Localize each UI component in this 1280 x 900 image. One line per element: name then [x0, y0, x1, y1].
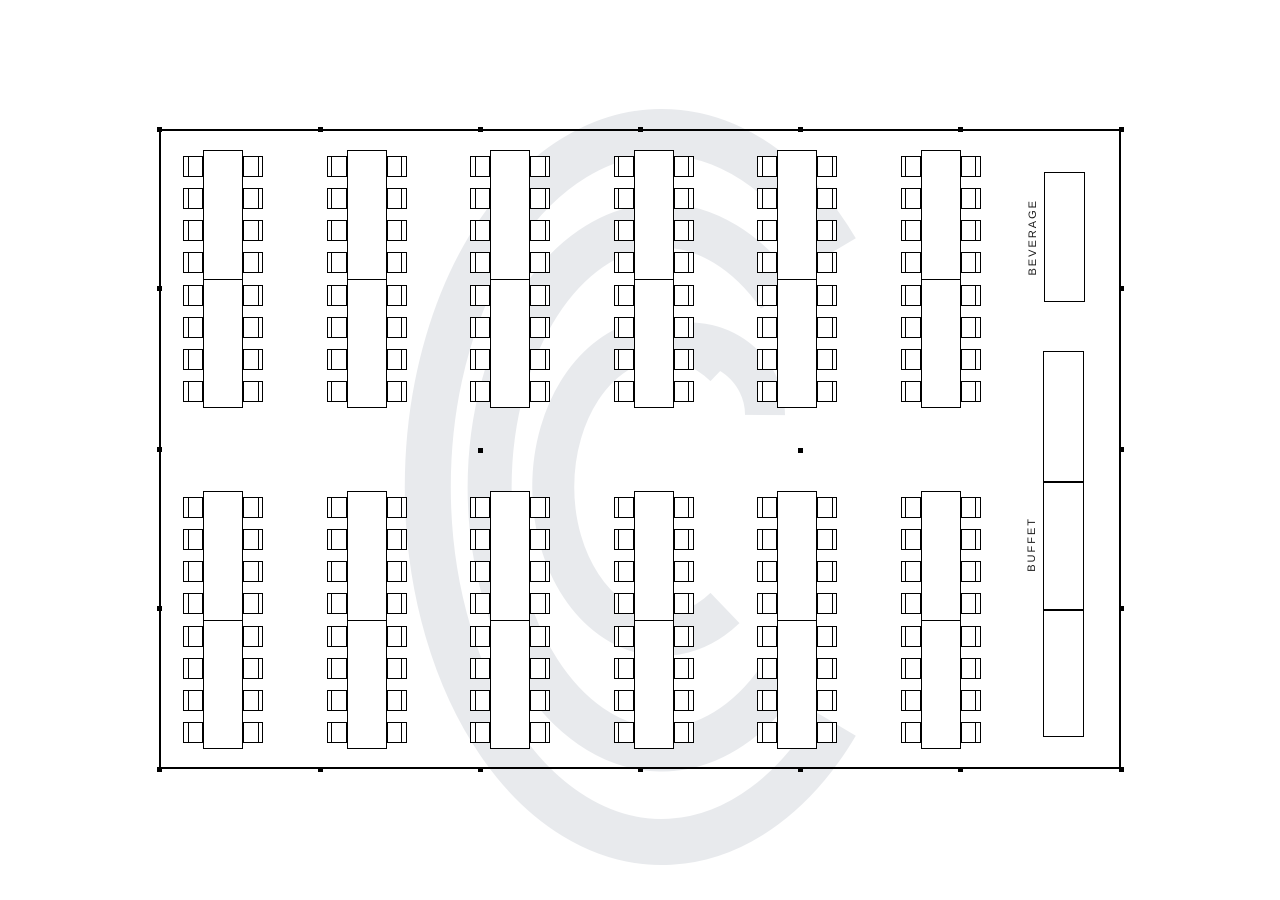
banquet-table — [203, 491, 243, 749]
chair-back — [545, 690, 546, 711]
chair-back — [258, 561, 259, 582]
chair-back — [258, 349, 259, 370]
chair — [674, 593, 694, 614]
chair-back — [401, 285, 402, 306]
chair-back — [545, 497, 546, 518]
chair-back — [762, 285, 763, 306]
chair-back — [832, 156, 833, 177]
pole-marker — [318, 767, 323, 772]
chair-back — [331, 285, 332, 306]
pole-marker — [638, 767, 643, 772]
chair — [901, 188, 921, 209]
chair — [674, 690, 694, 711]
chair — [674, 156, 694, 177]
pole-marker — [638, 127, 643, 132]
chair — [530, 561, 550, 582]
chair-back — [688, 188, 689, 209]
chair-back — [545, 381, 546, 402]
chair-back — [475, 561, 476, 582]
chair — [614, 529, 634, 550]
chair-back — [545, 252, 546, 273]
chair-back — [258, 285, 259, 306]
chair — [243, 156, 263, 177]
chair — [817, 593, 837, 614]
chair-back — [905, 220, 906, 241]
chair-back — [762, 626, 763, 647]
chair — [757, 690, 777, 711]
chair — [961, 220, 981, 241]
chair-back — [832, 349, 833, 370]
table-joint-divider — [778, 620, 816, 621]
pole-marker — [157, 606, 162, 611]
chair-back — [975, 156, 976, 177]
pole-marker — [798, 127, 803, 132]
chair — [183, 220, 203, 241]
chair — [243, 626, 263, 647]
chair-back — [832, 285, 833, 306]
chair-back — [475, 497, 476, 518]
chair — [243, 529, 263, 550]
chair — [243, 252, 263, 273]
banquet-table — [777, 150, 817, 408]
chair-back — [258, 497, 259, 518]
chair-back — [688, 381, 689, 402]
chair — [530, 593, 550, 614]
chair — [470, 529, 490, 550]
chair — [327, 188, 347, 209]
chair — [757, 252, 777, 273]
chair-back — [905, 349, 906, 370]
chair — [757, 220, 777, 241]
chair — [901, 349, 921, 370]
chair-back — [688, 156, 689, 177]
chair — [757, 285, 777, 306]
chair-back — [905, 252, 906, 273]
chair — [470, 349, 490, 370]
chair-back — [832, 690, 833, 711]
chair-back — [832, 658, 833, 679]
chair — [530, 658, 550, 679]
chair — [387, 593, 407, 614]
chair — [614, 690, 634, 711]
chair-back — [401, 349, 402, 370]
chair — [327, 156, 347, 177]
chair — [674, 220, 694, 241]
chair — [961, 658, 981, 679]
pole-marker — [157, 127, 162, 132]
chair — [757, 156, 777, 177]
chair-back — [905, 561, 906, 582]
chair — [530, 156, 550, 177]
chair-back — [331, 626, 332, 647]
chair-back — [188, 381, 189, 402]
chair-back — [188, 252, 189, 273]
chair — [327, 252, 347, 273]
chair — [470, 722, 490, 743]
chair-back — [401, 156, 402, 177]
chair-back — [475, 658, 476, 679]
chair — [327, 593, 347, 614]
chair-back — [975, 349, 976, 370]
pole-marker — [798, 767, 803, 772]
chair — [817, 220, 837, 241]
chair — [387, 156, 407, 177]
chair-back — [188, 188, 189, 209]
banquet-table — [634, 150, 674, 408]
chair-back — [331, 529, 332, 550]
chair-back — [832, 252, 833, 273]
chair-back — [475, 529, 476, 550]
chair-back — [475, 381, 476, 402]
chair — [243, 285, 263, 306]
chair-back — [258, 593, 259, 614]
chair-back — [975, 593, 976, 614]
chair-back — [905, 690, 906, 711]
chair — [387, 349, 407, 370]
chair-back — [975, 317, 976, 338]
beverage-table: BEVERAGE — [1044, 172, 1085, 302]
chair — [243, 317, 263, 338]
chair — [614, 593, 634, 614]
chair-back — [188, 529, 189, 550]
chair — [614, 156, 634, 177]
chair-back — [975, 188, 976, 209]
table-joint-divider — [204, 620, 242, 621]
chair — [327, 381, 347, 402]
chair-back — [475, 156, 476, 177]
chair-back — [618, 593, 619, 614]
pole-marker — [1119, 606, 1124, 611]
chair-back — [331, 593, 332, 614]
chair-back — [688, 658, 689, 679]
chair — [961, 349, 981, 370]
buffet-table: BUFFET — [1043, 351, 1084, 737]
chair-back — [545, 349, 546, 370]
pole-marker — [1119, 286, 1124, 291]
chair — [961, 722, 981, 743]
chair-back — [975, 529, 976, 550]
chair-back — [618, 529, 619, 550]
chair — [470, 317, 490, 338]
chair-back — [258, 381, 259, 402]
chair — [327, 658, 347, 679]
chair — [757, 593, 777, 614]
chair-back — [188, 285, 189, 306]
chair — [387, 497, 407, 518]
table-joint-divider — [635, 620, 673, 621]
chair — [243, 349, 263, 370]
chair — [817, 658, 837, 679]
buffet-segment-divider — [1044, 609, 1083, 611]
chair — [243, 497, 263, 518]
chair-back — [545, 188, 546, 209]
chair-back — [905, 317, 906, 338]
chair — [530, 220, 550, 241]
chair-back — [258, 722, 259, 743]
chair — [470, 561, 490, 582]
chair-back — [975, 626, 976, 647]
chair-back — [905, 593, 906, 614]
chair — [327, 690, 347, 711]
pole-marker — [478, 127, 483, 132]
chair — [183, 349, 203, 370]
chair — [183, 658, 203, 679]
chair — [183, 722, 203, 743]
chair-back — [258, 220, 259, 241]
chair — [387, 188, 407, 209]
chair — [674, 561, 694, 582]
chair-back — [832, 381, 833, 402]
chair-back — [258, 690, 259, 711]
chair — [757, 529, 777, 550]
chair — [387, 626, 407, 647]
chair — [817, 188, 837, 209]
chair-back — [618, 626, 619, 647]
chair — [243, 188, 263, 209]
pole-marker — [157, 286, 162, 291]
table-joint-divider — [922, 279, 960, 280]
chair-back — [688, 626, 689, 647]
chair-back — [258, 156, 259, 177]
chair-back — [832, 497, 833, 518]
chair — [470, 156, 490, 177]
chair-back — [258, 626, 259, 647]
chair — [901, 722, 921, 743]
chair — [327, 285, 347, 306]
chair — [530, 381, 550, 402]
chair — [817, 690, 837, 711]
chair — [817, 626, 837, 647]
chair — [961, 529, 981, 550]
chair-back — [688, 690, 689, 711]
chair-back — [331, 658, 332, 679]
chair-back — [762, 156, 763, 177]
chair — [530, 529, 550, 550]
chair-back — [188, 220, 189, 241]
pole-marker — [958, 767, 963, 772]
chair-back — [905, 626, 906, 647]
chair — [674, 317, 694, 338]
chair-back — [688, 349, 689, 370]
chair — [674, 722, 694, 743]
chair — [674, 658, 694, 679]
chair — [530, 285, 550, 306]
chair — [674, 252, 694, 273]
chair — [674, 188, 694, 209]
chair — [243, 561, 263, 582]
chair-back — [762, 188, 763, 209]
chair — [614, 252, 634, 273]
chair-back — [688, 722, 689, 743]
chair — [961, 626, 981, 647]
table-joint-divider — [348, 279, 386, 280]
chair — [674, 626, 694, 647]
chair — [183, 529, 203, 550]
chair-back — [475, 626, 476, 647]
table-joint-divider — [204, 279, 242, 280]
banquet-table — [634, 491, 674, 749]
chair-back — [331, 317, 332, 338]
chair-back — [762, 349, 763, 370]
chair-back — [331, 561, 332, 582]
chair-back — [401, 658, 402, 679]
chair — [183, 188, 203, 209]
chair-back — [401, 252, 402, 273]
chair — [470, 381, 490, 402]
chair-back — [618, 285, 619, 306]
chair-back — [832, 529, 833, 550]
chair-back — [975, 285, 976, 306]
chair-back — [331, 381, 332, 402]
banquet-table — [490, 491, 530, 749]
chair — [243, 690, 263, 711]
chair — [243, 593, 263, 614]
chair-back — [331, 690, 332, 711]
chair — [243, 220, 263, 241]
chair-back — [331, 497, 332, 518]
chair-back — [331, 349, 332, 370]
chair — [183, 317, 203, 338]
chair-back — [401, 317, 402, 338]
banquet-table — [203, 150, 243, 408]
chair-back — [688, 593, 689, 614]
chair-back — [688, 220, 689, 241]
chair-back — [618, 156, 619, 177]
table-joint-divider — [491, 620, 529, 621]
chair — [387, 529, 407, 550]
chair-back — [975, 658, 976, 679]
chair-back — [401, 497, 402, 518]
chair-back — [545, 722, 546, 743]
chair — [614, 381, 634, 402]
chair-back — [331, 220, 332, 241]
chair-back — [688, 529, 689, 550]
chair-back — [832, 188, 833, 209]
chair-back — [832, 220, 833, 241]
chair-back — [618, 220, 619, 241]
chair-back — [545, 529, 546, 550]
chair — [470, 285, 490, 306]
chair-back — [545, 317, 546, 338]
chair — [530, 188, 550, 209]
chair-back — [762, 497, 763, 518]
chair — [901, 252, 921, 273]
chair — [614, 349, 634, 370]
pole-marker — [478, 448, 483, 453]
chair — [674, 529, 694, 550]
chair — [757, 497, 777, 518]
chair — [901, 285, 921, 306]
chair-back — [401, 529, 402, 550]
pole-marker — [318, 127, 323, 132]
chair-back — [258, 252, 259, 273]
chair-back — [401, 381, 402, 402]
chair — [327, 529, 347, 550]
chair — [387, 561, 407, 582]
chair — [817, 285, 837, 306]
chair-back — [618, 497, 619, 518]
chair — [243, 381, 263, 402]
chair-back — [545, 593, 546, 614]
chair — [961, 252, 981, 273]
chair-back — [905, 381, 906, 402]
chair — [901, 561, 921, 582]
chair — [183, 497, 203, 518]
chair-back — [188, 349, 189, 370]
chair-back — [401, 690, 402, 711]
chair — [530, 626, 550, 647]
buffet-segment-divider — [1044, 481, 1083, 483]
chair — [614, 317, 634, 338]
chair-back — [258, 658, 259, 679]
banquet-table — [777, 491, 817, 749]
chair — [901, 317, 921, 338]
chair — [817, 561, 837, 582]
chair-back — [401, 561, 402, 582]
chair-back — [762, 529, 763, 550]
chair — [674, 381, 694, 402]
chair — [183, 561, 203, 582]
chair — [470, 626, 490, 647]
chair — [961, 381, 981, 402]
chair — [470, 188, 490, 209]
chair — [387, 381, 407, 402]
chair-back — [618, 722, 619, 743]
chair-back — [905, 188, 906, 209]
chair — [614, 722, 634, 743]
chair — [757, 317, 777, 338]
chair-back — [905, 722, 906, 743]
chair-back — [688, 561, 689, 582]
chair — [387, 252, 407, 273]
chair — [674, 497, 694, 518]
chair — [387, 690, 407, 711]
chair — [817, 317, 837, 338]
chair-back — [832, 593, 833, 614]
chair-back — [475, 690, 476, 711]
chair — [901, 156, 921, 177]
chair — [530, 497, 550, 518]
floor-plan: BEVERAGE BUFFET — [0, 0, 1280, 900]
chair — [387, 722, 407, 743]
buffet-label: BUFFET — [1020, 352, 1044, 736]
chair-back — [475, 252, 476, 273]
chair-back — [475, 317, 476, 338]
chair — [961, 156, 981, 177]
chair-back — [401, 722, 402, 743]
pole-marker — [798, 448, 803, 453]
chair — [327, 722, 347, 743]
chair — [387, 658, 407, 679]
chair-back — [545, 561, 546, 582]
chair-back — [975, 252, 976, 273]
chair-back — [832, 317, 833, 338]
chair-back — [188, 561, 189, 582]
chair — [387, 220, 407, 241]
chair — [327, 220, 347, 241]
chair — [817, 529, 837, 550]
chair-back — [905, 658, 906, 679]
chair-back — [258, 317, 259, 338]
chair — [183, 593, 203, 614]
chair — [327, 349, 347, 370]
chair-back — [975, 690, 976, 711]
chair — [757, 561, 777, 582]
chair — [757, 381, 777, 402]
chair-back — [475, 349, 476, 370]
chair-back — [618, 317, 619, 338]
chair — [614, 188, 634, 209]
